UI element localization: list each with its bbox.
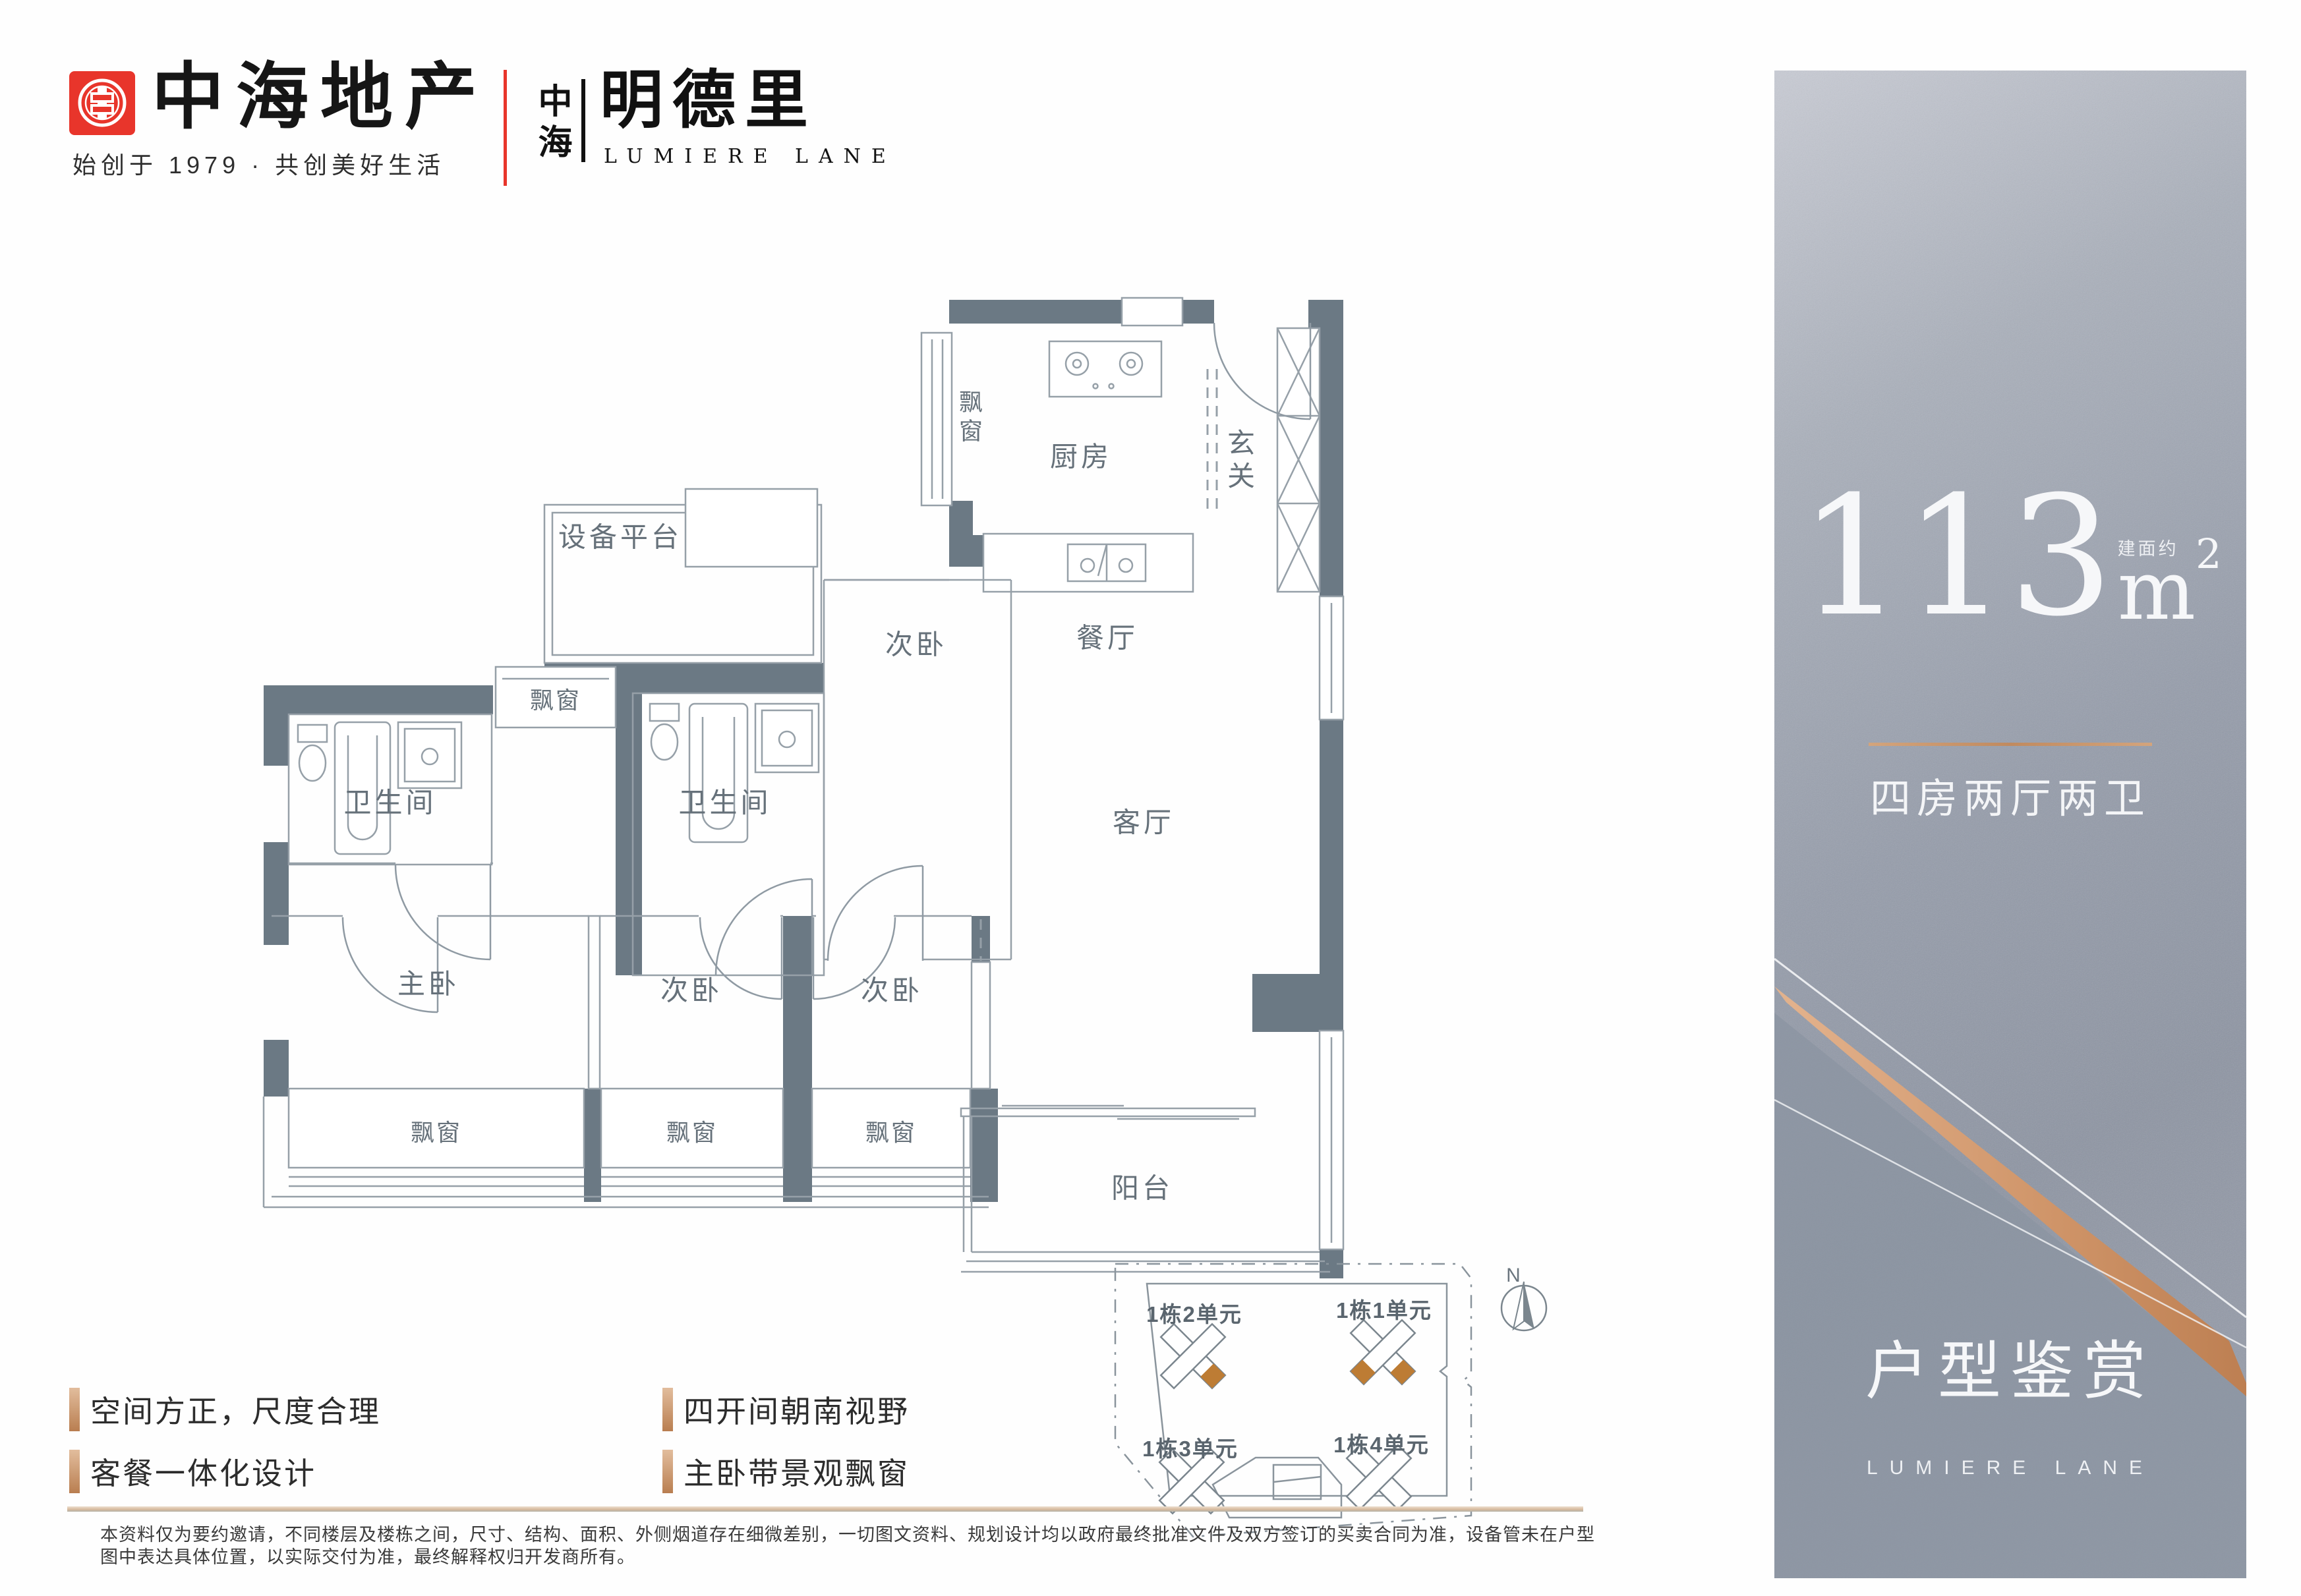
disclaimer-text: 本资料仅为要约邀请，不同楼层及楼栋之间，尺寸、结构、面积、外侧烟道存在细微差别，…	[100, 1524, 1603, 1568]
feature-bar-icon	[69, 1388, 80, 1431]
project-divider-bar	[581, 79, 585, 162]
site-unit-label-4: 1栋4单元	[1333, 1427, 1430, 1459]
floor-plan: 飘窗 厨房 玄关 设备平台 次卧 餐厅 卫生间 飘窗 卫生间 客厅 主卧 次卧 …	[250, 290, 1345, 1305]
feature-item-3: 客餐一体化设计	[69, 1450, 316, 1493]
room-label-bay-bed2: 飘窗	[666, 1114, 718, 1148]
panel-subtitle: LUMIERE LANE	[1774, 1457, 2246, 1479]
feature-item-4: 主卧带景观飘窗	[662, 1450, 910, 1493]
zhonghai-logo-icon	[69, 71, 135, 135]
north-arrow-icon	[1501, 1282, 1546, 1330]
room-label-kitchen: 厨房	[1050, 435, 1112, 475]
info-panel: 113 建面约 m 2 四房两厅两卫 户型鉴赏 LUMIERE LANE	[1774, 71, 2246, 1578]
room-label-bath-master: 卫生间	[343, 781, 436, 821]
doors	[343, 323, 1310, 1012]
feature-bar-icon	[662, 1388, 673, 1431]
room-label-bedroom2: 次卧	[660, 969, 722, 1009]
panel-accent-divider	[1869, 743, 2152, 746]
building-footprints	[1140, 1301, 1434, 1533]
feature-bar-icon	[69, 1450, 80, 1493]
zhonghai-emblem-icon	[69, 71, 135, 135]
panel-title: 户型鉴赏	[1774, 1320, 2246, 1411]
project-name: 明德里	[600, 69, 817, 132]
feature-item-1: 空间方正，尺度合理	[69, 1388, 381, 1431]
room-label-bay-small: 飘窗	[530, 681, 581, 716]
feature-text: 主卧带景观飘窗	[684, 1450, 910, 1493]
brand-name: 中海地产	[152, 61, 489, 133]
site-unit-label-1: 1栋1单元	[1336, 1293, 1432, 1325]
room-label-bedroom-top: 次卧	[885, 623, 947, 663]
area-unit: m	[2118, 561, 2196, 621]
room-label-bay-bed3: 飘窗	[865, 1114, 917, 1148]
bottom-divider	[67, 1506, 1583, 1512]
brand-tagline: 始创于 1979 · 共创美好生活	[73, 146, 445, 181]
feature-bar-icon	[662, 1450, 673, 1493]
room-label-dining: 餐厅	[1076, 616, 1138, 656]
site-unit-label-3: 1栋3单元	[1142, 1431, 1238, 1463]
area-value: 113	[1799, 492, 2113, 621]
brochure-page: 中海地产 始创于 1979 · 共创美好生活 中海 明德里 LUMIERE LA…	[0, 0, 2301, 1596]
header-red-divider	[504, 70, 507, 186]
room-label-entry: 玄关	[1219, 428, 1260, 494]
area-figure: 113 建面约 m 2	[1774, 492, 2246, 621]
feature-item-2: 四开间朝南视野	[662, 1388, 910, 1431]
feature-text: 空间方正，尺度合理	[90, 1388, 381, 1431]
feature-text: 客餐一体化设计	[90, 1450, 316, 1493]
room-label-living: 客厅	[1113, 801, 1175, 841]
room-label-master: 主卧	[397, 962, 459, 1002]
room-label-bedroom3: 次卧	[861, 969, 923, 1009]
project-name-en: LUMIERE LANE	[604, 145, 896, 168]
room-label-bay-master: 飘窗	[411, 1114, 462, 1148]
area-superscript: 2	[2196, 534, 2221, 575]
site-unit-label-2: 1栋2单元	[1146, 1297, 1242, 1328]
room-label-equipment-platform: 设备平台	[558, 515, 682, 556]
room-label-balcony: 阳台	[1111, 1166, 1173, 1207]
layout-text: 四房两厅两卫	[1774, 765, 2246, 824]
room-label-bath-shared: 卫生间	[678, 781, 771, 821]
room-label-bay-kitchen: 飘窗	[952, 389, 986, 447]
north-label: N	[1506, 1265, 1521, 1287]
project-brand: 中海	[527, 83, 577, 165]
feature-text: 四开间朝南视野	[684, 1388, 910, 1431]
